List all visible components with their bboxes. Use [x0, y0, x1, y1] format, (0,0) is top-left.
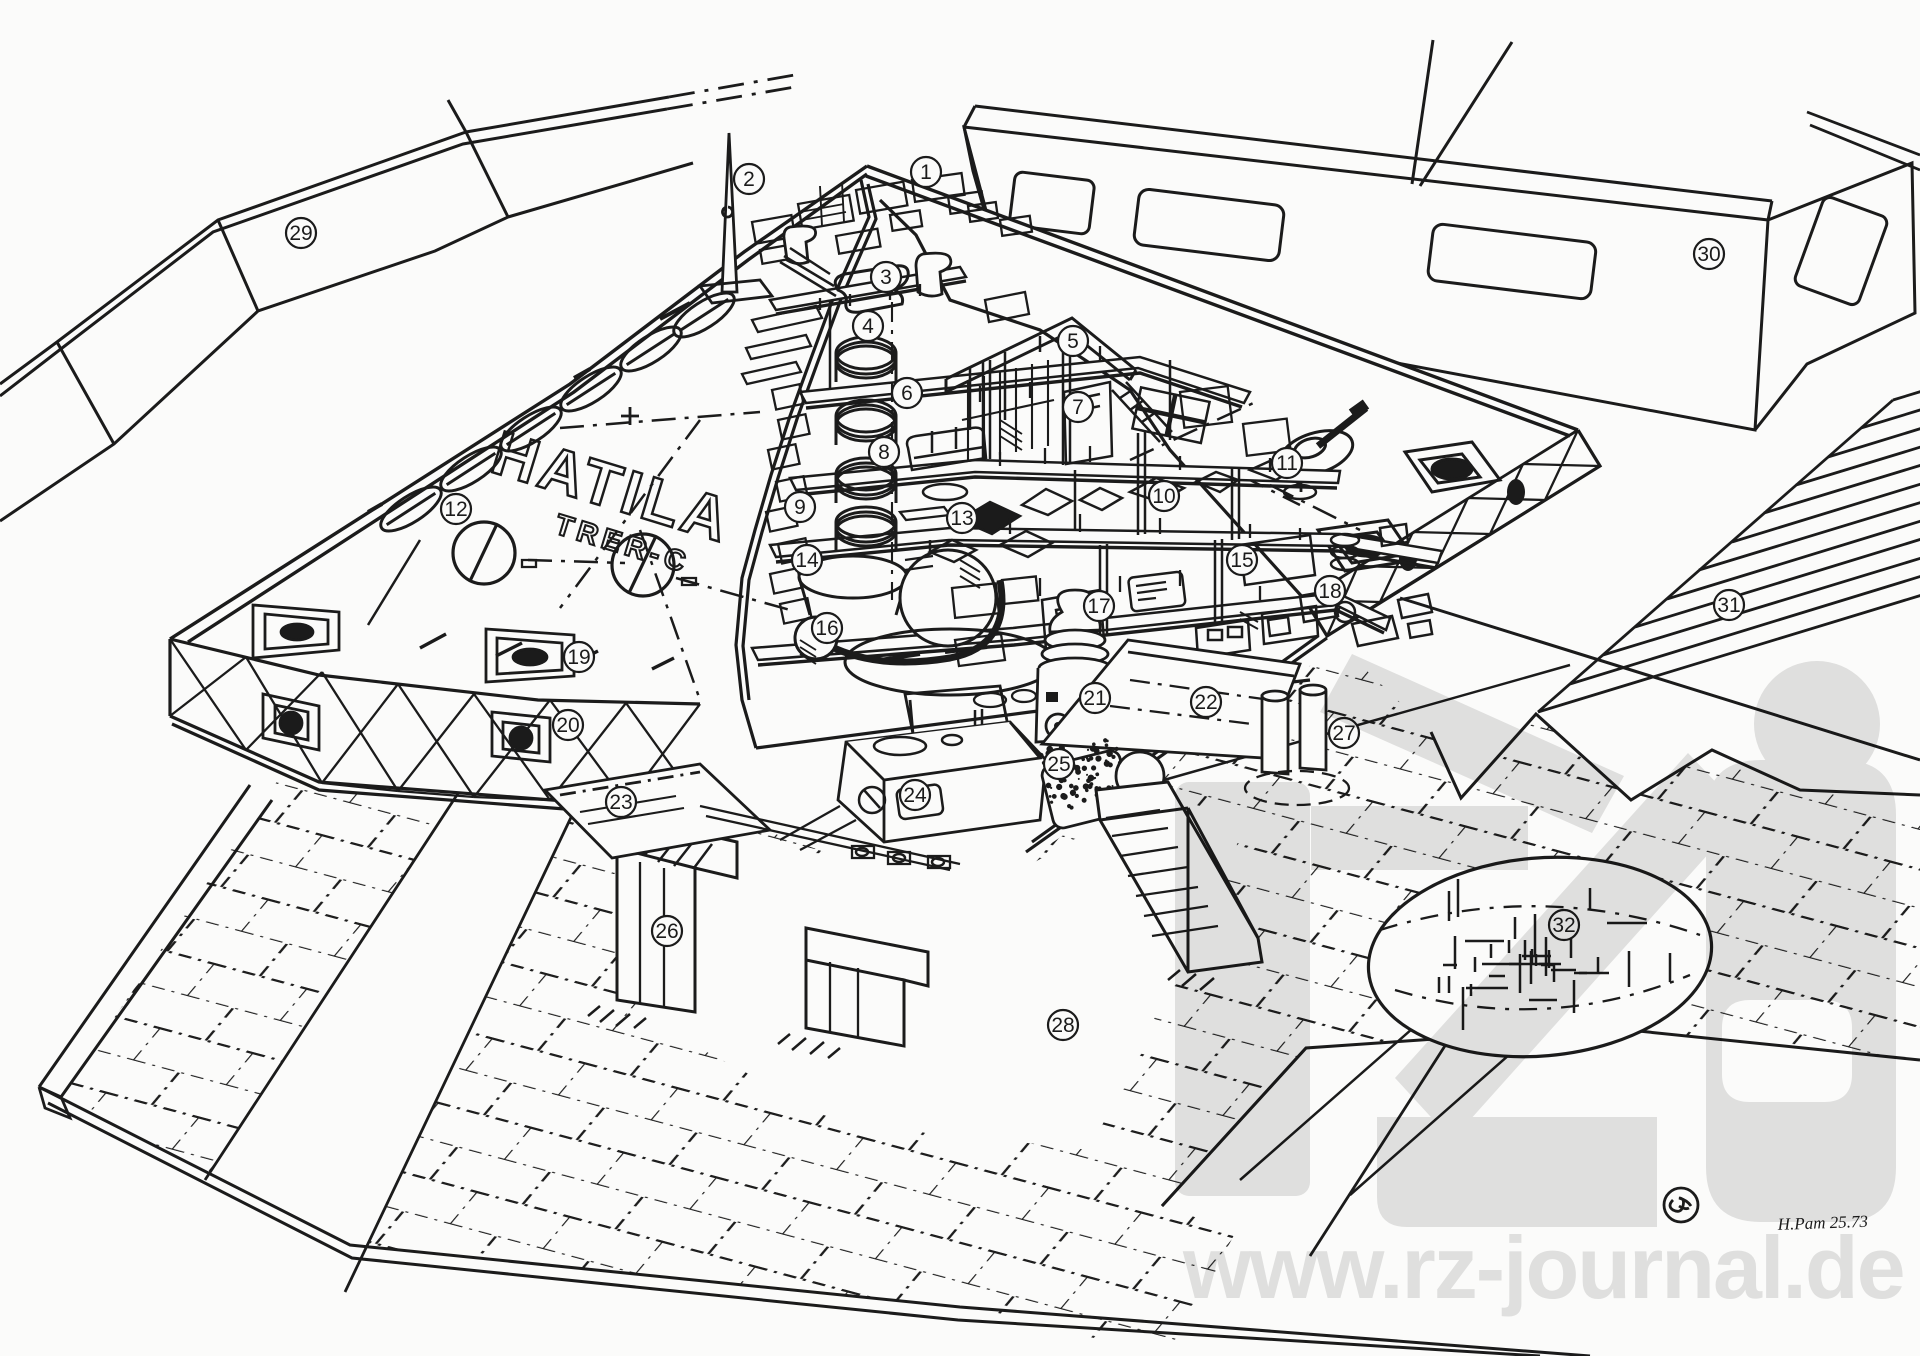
svg-text:21: 21 [1083, 687, 1106, 710]
svg-text:15: 15 [1230, 549, 1253, 572]
svg-text:3: 3 [880, 266, 892, 289]
svg-text:18: 18 [1318, 580, 1341, 603]
svg-text:24: 24 [903, 784, 927, 807]
svg-text:8: 8 [878, 441, 890, 464]
svg-text:29: 29 [289, 222, 312, 245]
svg-text:30: 30 [1697, 243, 1720, 266]
svg-text:7: 7 [1072, 396, 1084, 419]
svg-text:5: 5 [1067, 330, 1079, 353]
svg-text:www.rz-journal.de: www.rz-journal.de [1182, 1218, 1904, 1317]
svg-text:26: 26 [655, 920, 678, 943]
svg-text:1: 1 [920, 161, 932, 184]
svg-text:9: 9 [794, 496, 806, 519]
svg-text:19: 19 [567, 646, 590, 669]
svg-text:25: 25 [1047, 753, 1070, 776]
svg-text:23: 23 [609, 791, 632, 814]
svg-text:28: 28 [1051, 1014, 1074, 1037]
svg-text:2: 2 [743, 168, 755, 191]
svg-text:4: 4 [862, 315, 874, 338]
svg-text:17: 17 [1087, 595, 1110, 618]
svg-text:16: 16 [815, 617, 838, 640]
svg-text:13: 13 [950, 507, 973, 530]
svg-text:31: 31 [1717, 594, 1740, 617]
svg-text:12: 12 [444, 498, 467, 521]
svg-text:6: 6 [901, 382, 913, 405]
svg-text:14: 14 [795, 549, 819, 572]
svg-text:20: 20 [556, 714, 579, 737]
svg-text:10: 10 [1152, 485, 1175, 508]
svg-text:11: 11 [1276, 452, 1298, 475]
svg-text:22: 22 [1194, 691, 1217, 714]
